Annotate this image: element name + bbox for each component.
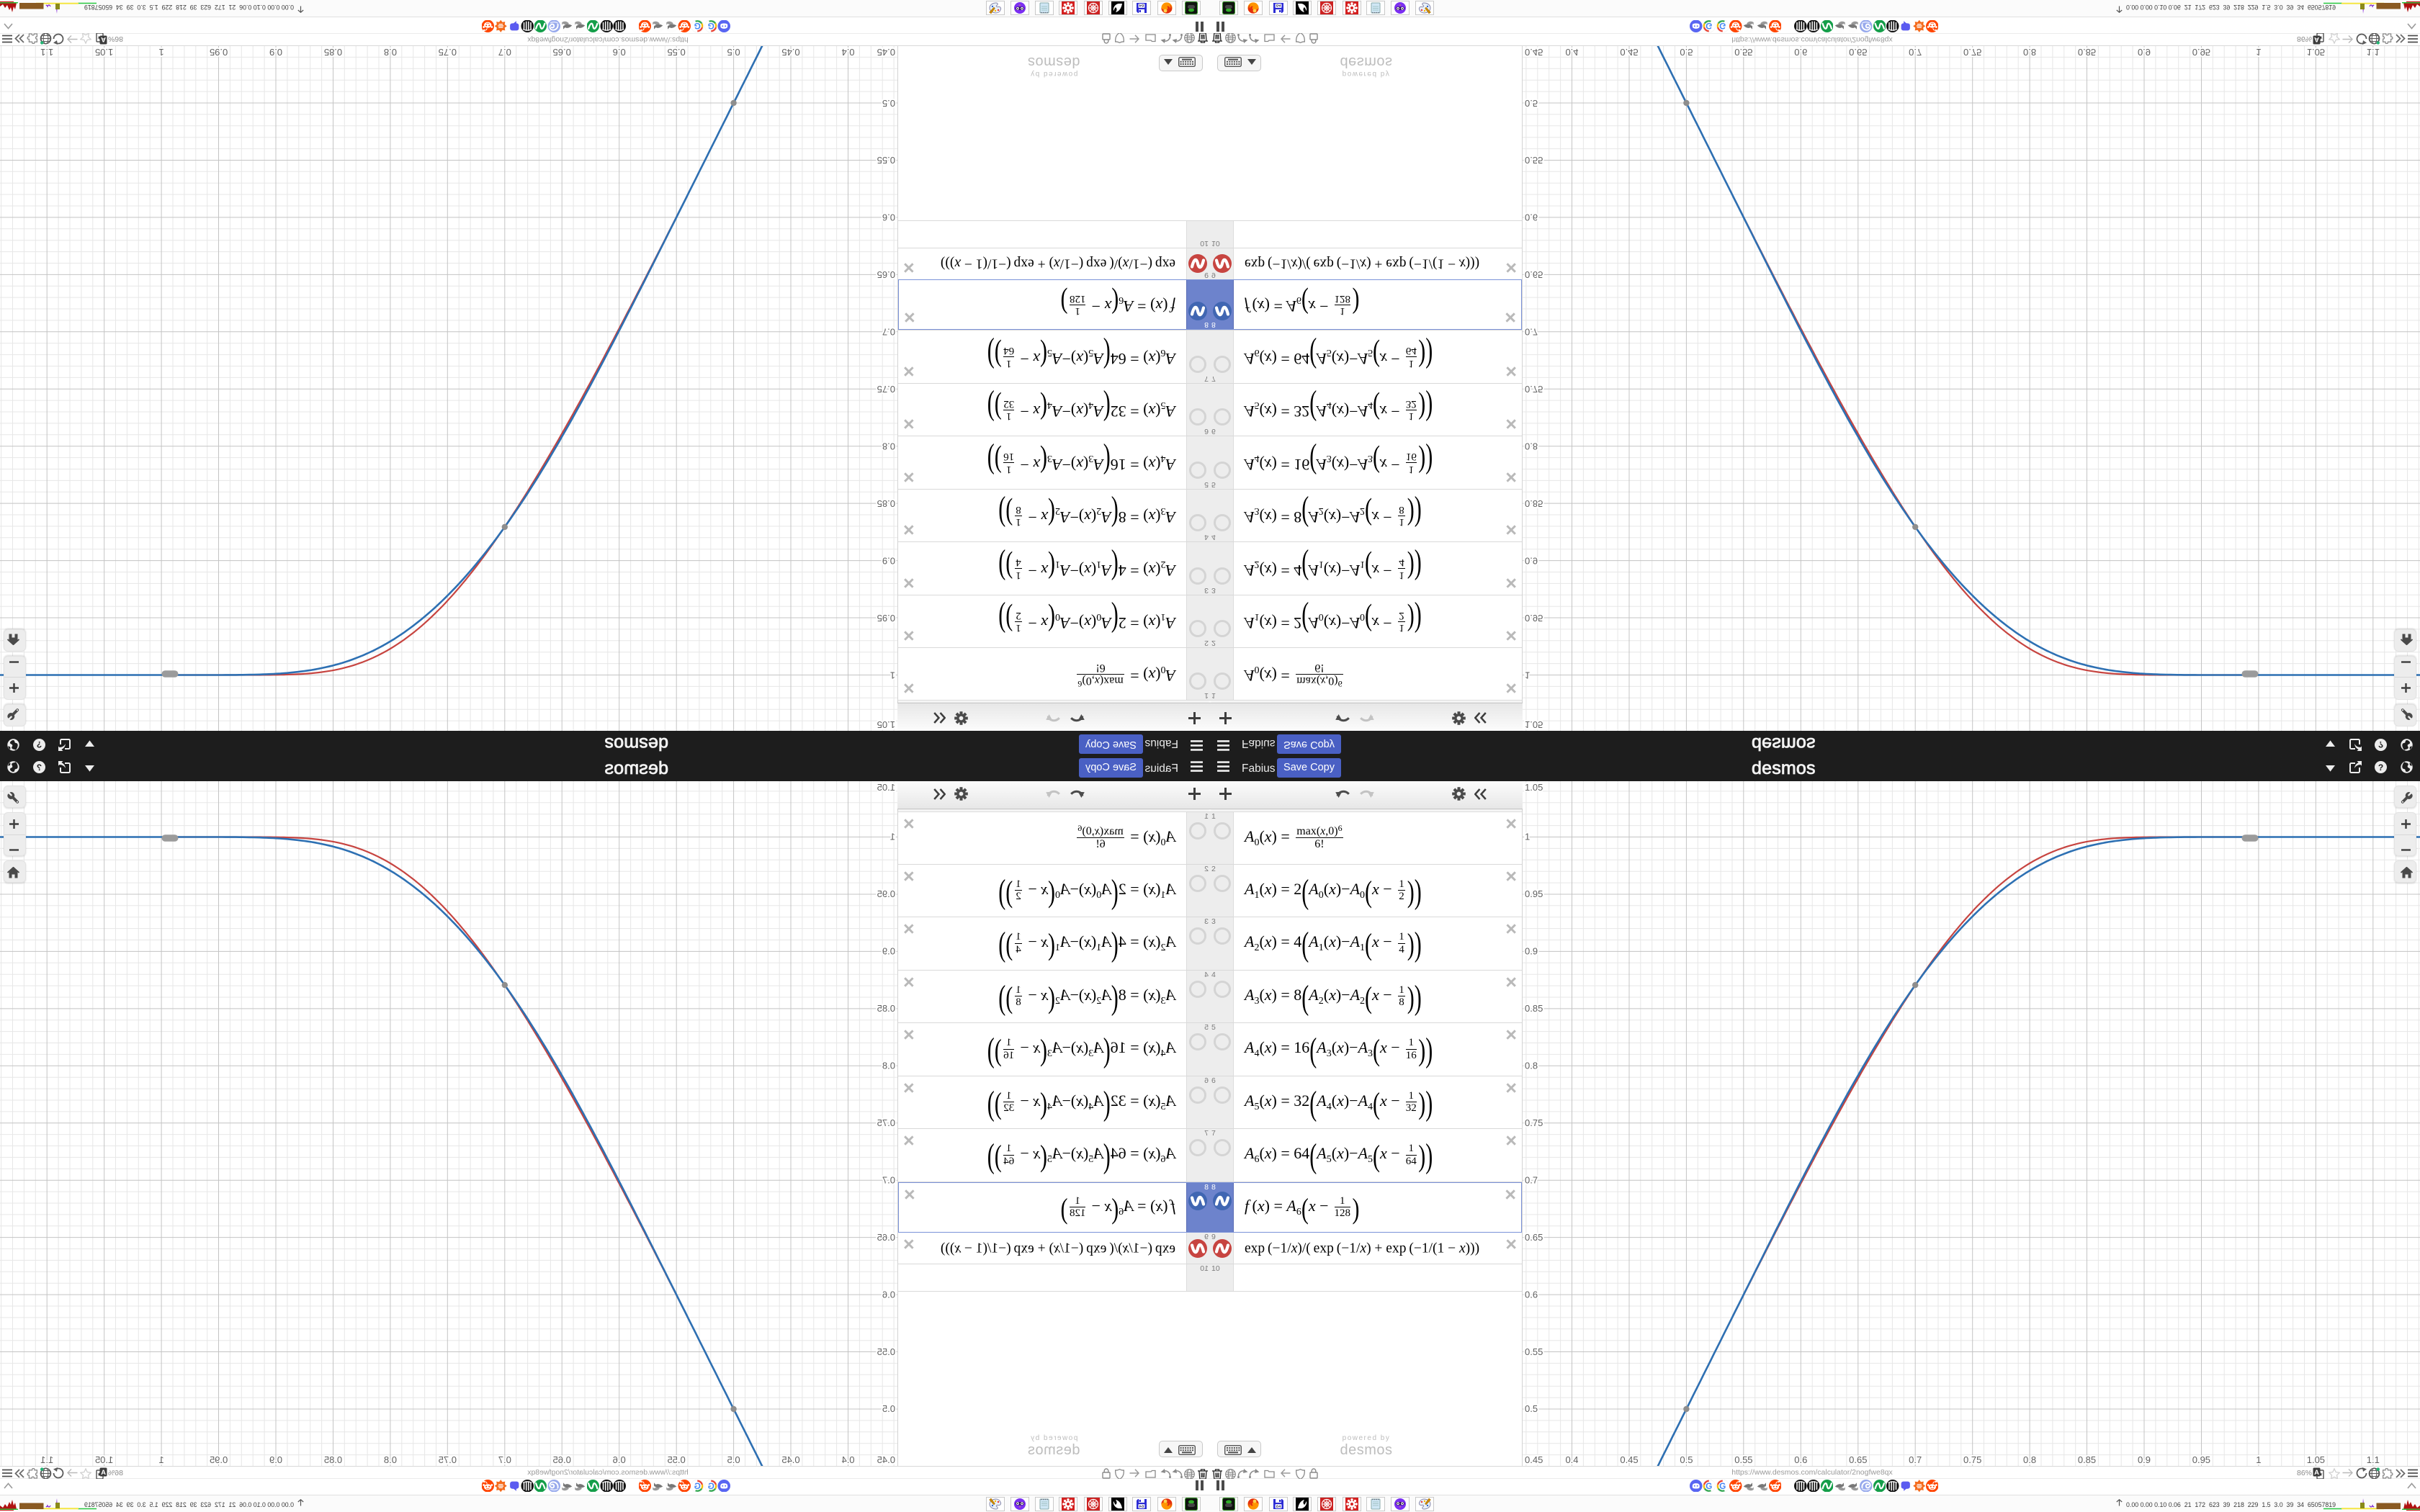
svg-text:1.05: 1.05 [95,47,113,58]
svg-text:1.1: 1.1 [40,1454,53,1465]
svg-text:0.5: 0.5 [727,1454,740,1465]
svg-text:A: A [101,1469,106,1477]
svg-text:0.75: 0.75 [877,384,895,395]
svg-text:1: 1 [158,1454,163,1465]
svg-text:1.05: 1.05 [1525,782,1543,793]
svg-text:A: A [101,35,106,43]
svg-text:0.85: 0.85 [324,47,342,58]
svg-text:0.65: 0.65 [553,47,571,58]
svg-text:0.7: 0.7 [882,1174,895,1185]
svg-text:0.9: 0.9 [2138,1454,2151,1465]
svg-text:1: 1 [1525,832,1530,842]
svg-text:G: G [694,21,701,31]
svg-text:1: 1 [890,670,895,680]
svg-text:0.7: 0.7 [498,1454,511,1465]
svg-text:0.85: 0.85 [877,1003,895,1014]
svg-text:1.05: 1.05 [877,782,895,793]
svg-text:0.8: 0.8 [384,47,397,58]
svg-text:0.75: 0.75 [877,1117,895,1128]
svg-text:?: ? [2378,762,2383,772]
svg-text:1.05: 1.05 [2307,47,2325,58]
svg-text:0.7: 0.7 [1909,47,1922,58]
svg-text:0.45: 0.45 [781,1454,799,1465]
svg-text:1.05: 1.05 [2307,1454,2325,1465]
svg-text:0.4: 0.4 [1565,1454,1578,1465]
svg-text:0.6: 0.6 [882,212,895,223]
svg-text:0.8: 0.8 [384,1454,397,1465]
svg-text:1.1: 1.1 [2367,47,2380,58]
svg-text:0.6: 0.6 [1794,47,1807,58]
svg-text:1: 1 [890,832,895,842]
svg-text:64: 64 [1139,3,1144,8]
svg-text:0.95: 0.95 [210,1454,228,1465]
svg-text:0.7: 0.7 [498,47,511,58]
svg-text:?: ? [37,762,42,772]
svg-text:0.85: 0.85 [1525,498,1543,509]
svg-text:0.7: 0.7 [1525,327,1538,338]
svg-text:1: 1 [2256,1454,2261,1465]
svg-text:0.5: 0.5 [882,1403,895,1414]
svg-text:0.45: 0.45 [1620,47,1638,58]
svg-text:0.75: 0.75 [1963,47,1981,58]
svg-text:0.45: 0.45 [877,1454,895,1465]
svg-text:0.55: 0.55 [1525,1346,1543,1357]
svg-text:0.9: 0.9 [1525,555,1538,566]
svg-text:0.4: 0.4 [841,47,854,58]
svg-text:0.65: 0.65 [1525,1232,1543,1243]
svg-text:0.8: 0.8 [2023,47,2036,58]
svg-text:0.4: 0.4 [1565,47,1578,58]
svg-text:1: 1 [2256,47,2261,58]
svg-text:?: ? [37,740,42,750]
svg-text:0.85: 0.85 [877,498,895,509]
svg-text:64: 64 [1139,1504,1144,1509]
svg-text:0.55: 0.55 [667,47,685,58]
svg-text:0.7: 0.7 [882,327,895,338]
svg-text:G: G [707,1481,714,1491]
svg-text:0.8: 0.8 [882,1061,895,1071]
svg-text:0.55: 0.55 [1734,1454,1752,1465]
svg-text:0.95: 0.95 [2192,1454,2210,1465]
svg-text:0.65: 0.65 [1525,269,1543,280]
svg-text:0.6: 0.6 [1525,212,1538,223]
svg-text:0.65: 0.65 [553,1454,571,1465]
svg-text:1: 1 [158,47,163,58]
svg-text:1: 1 [1525,670,1530,680]
svg-text:0.95: 0.95 [210,47,228,58]
svg-text:0.55: 0.55 [667,1454,685,1465]
svg-text:0.55: 0.55 [1525,155,1543,166]
svg-text:0.6: 0.6 [613,47,626,58]
svg-text:0.6: 0.6 [613,1454,626,1465]
svg-text:0.9: 0.9 [269,1454,282,1465]
svg-text:0.9: 0.9 [2138,47,2151,58]
svg-text:0.4: 0.4 [841,1454,854,1465]
svg-text:0.45: 0.45 [1620,1454,1638,1465]
svg-text:0.85: 0.85 [1525,1003,1543,1014]
svg-text:G: G [1706,21,1713,31]
svg-text:0.85: 0.85 [324,1454,342,1465]
svg-text:0.65: 0.65 [1849,47,1867,58]
svg-text:G: G [1719,1481,1726,1491]
svg-text:0.8: 0.8 [2023,1454,2036,1465]
svg-text:?: ? [2378,740,2383,750]
svg-text:0.95: 0.95 [1525,888,1543,899]
svg-text:1.05: 1.05 [95,1454,113,1465]
svg-text:0.5: 0.5 [1680,1454,1693,1465]
svg-text:0.85: 0.85 [2078,1454,2096,1465]
svg-text:0.55: 0.55 [877,1346,895,1357]
svg-text:0.8: 0.8 [882,441,895,452]
svg-text:0.75: 0.75 [1525,384,1543,395]
svg-text:1.1: 1.1 [40,47,53,58]
svg-text:0.9: 0.9 [1525,946,1538,957]
svg-text:0.8: 0.8 [1525,1061,1538,1071]
svg-text:0.55: 0.55 [877,155,895,166]
svg-text:0.95: 0.95 [877,888,895,899]
svg-text:0.9: 0.9 [269,47,282,58]
svg-text:0.8: 0.8 [1525,441,1538,452]
svg-text:0.95: 0.95 [877,613,895,624]
svg-text:0.65: 0.65 [1849,1454,1867,1465]
svg-text:0.5: 0.5 [1680,47,1693,58]
svg-text:G: G [1706,1481,1713,1491]
svg-text:G: G [1719,21,1726,31]
svg-text:0.75: 0.75 [1525,1117,1543,1128]
svg-text:1.05: 1.05 [877,719,895,730]
svg-text:0.65: 0.65 [877,269,895,280]
svg-text:0.95: 0.95 [2192,47,2210,58]
svg-text:0.45: 0.45 [1525,47,1543,58]
svg-text:0.85: 0.85 [2078,47,2096,58]
svg-text:0.75: 0.75 [439,1454,457,1465]
svg-text:0.45: 0.45 [1525,1454,1543,1465]
svg-text:0.55: 0.55 [1734,47,1752,58]
svg-text:0.7: 0.7 [1525,1174,1538,1185]
svg-text:0.75: 0.75 [1963,1454,1981,1465]
svg-text:64: 64 [1276,3,1281,8]
svg-text:G: G [694,1481,701,1491]
svg-text:A: A [2314,35,2319,43]
svg-text:1.1: 1.1 [2367,1454,2380,1465]
svg-text:G: G [707,21,714,31]
svg-text:64: 64 [1276,1504,1281,1509]
svg-text:0.6: 0.6 [1794,1454,1807,1465]
svg-text:A: A [2314,1469,2319,1477]
svg-text:0.9: 0.9 [882,555,895,566]
svg-text:0.5: 0.5 [882,98,895,109]
svg-text:0.6: 0.6 [882,1289,895,1300]
svg-text:0.75: 0.75 [439,47,457,58]
svg-text:0.7: 0.7 [1909,1454,1922,1465]
svg-text:0.5: 0.5 [727,47,740,58]
svg-text:0.5: 0.5 [1525,98,1538,109]
svg-text:0.95: 0.95 [1525,613,1543,624]
svg-text:1.05: 1.05 [1525,719,1543,730]
svg-text:0.45: 0.45 [877,47,895,58]
svg-text:0.9: 0.9 [882,946,895,957]
svg-text:0.5: 0.5 [1525,1403,1538,1414]
svg-text:0.65: 0.65 [877,1232,895,1243]
svg-text:0.45: 0.45 [781,47,799,58]
svg-text:0.6: 0.6 [1525,1289,1538,1300]
